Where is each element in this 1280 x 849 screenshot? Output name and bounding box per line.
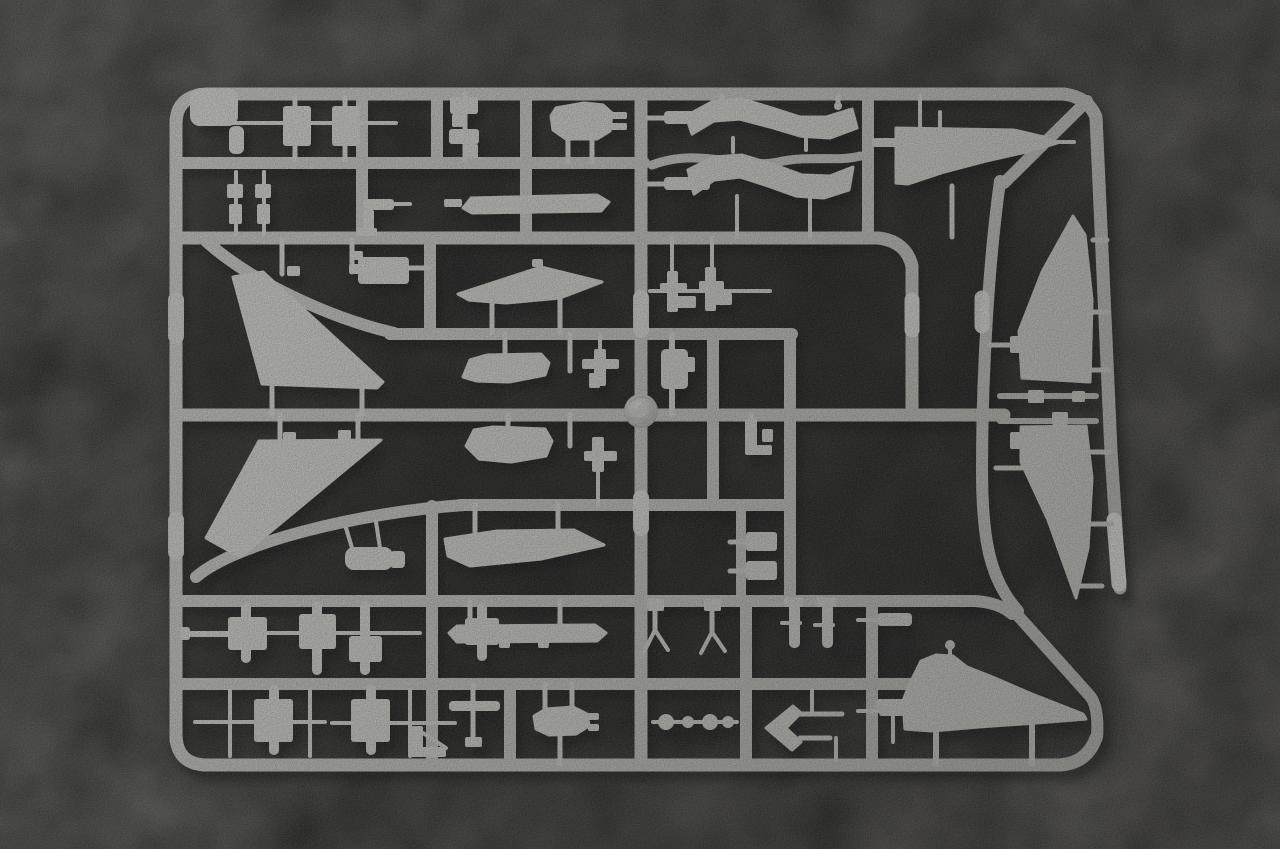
- film-grain-light: [0, 0, 1280, 849]
- sprue-scene-svg: [0, 0, 1280, 849]
- model-kit-sprue-photo: [0, 0, 1280, 849]
